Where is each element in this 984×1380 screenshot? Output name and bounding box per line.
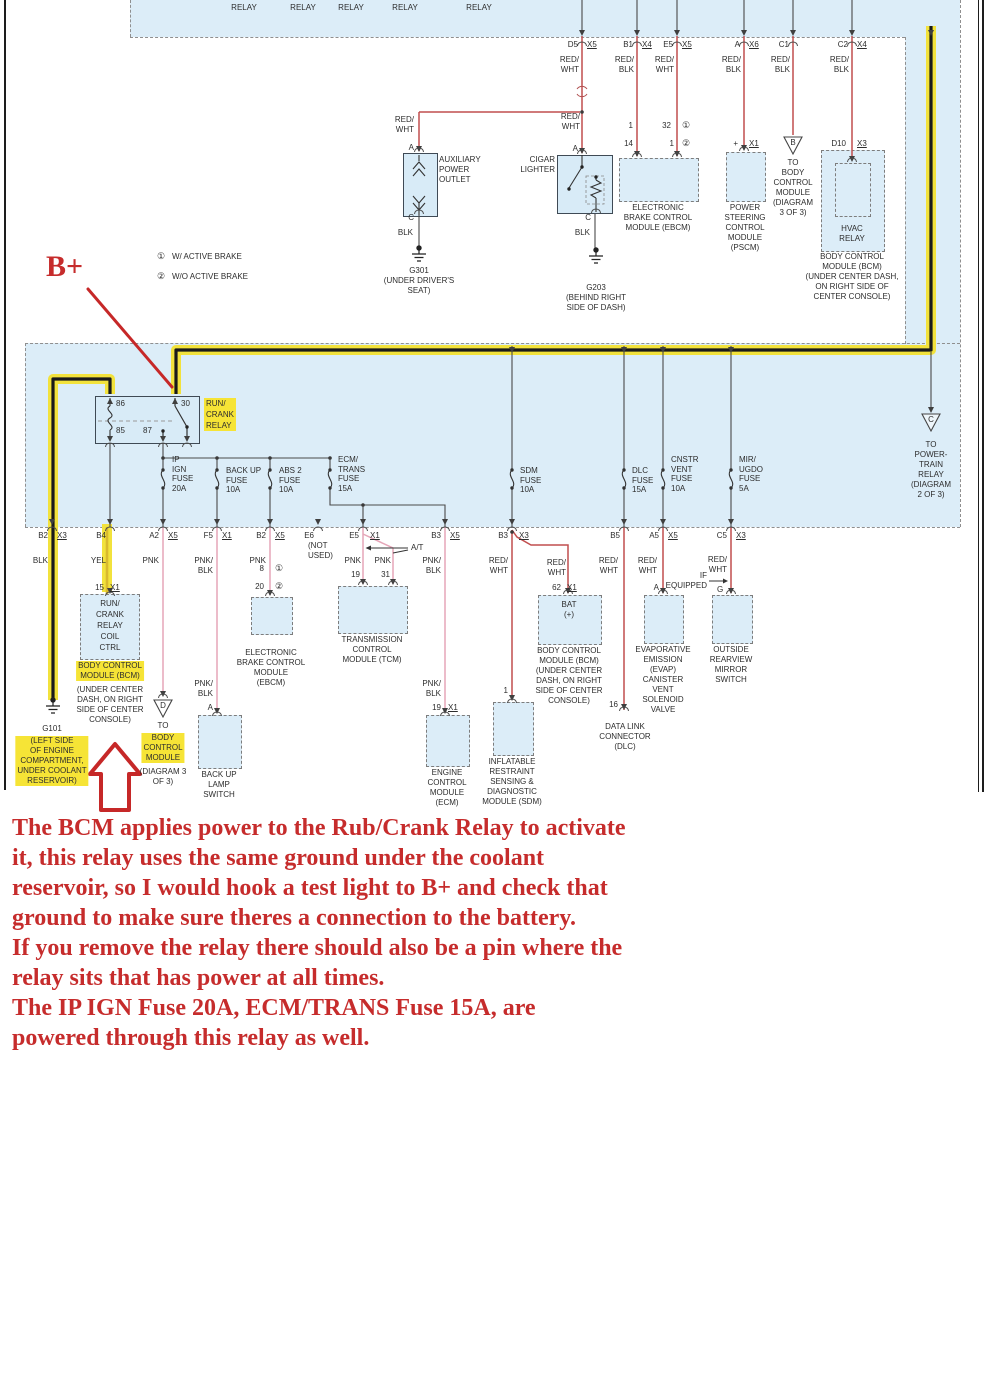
connector-pin: F5	[204, 531, 213, 541]
connector-pin: E5	[663, 40, 673, 50]
ecm-box	[426, 715, 470, 767]
wire-color-label: RED/ WHT	[638, 556, 657, 576]
ref-d-rest: (DIAGRAM 3 OF 3)	[140, 767, 187, 787]
evap-label: EVAPORATIVE EMISSION (EVAP) CANISTER VEN…	[635, 645, 690, 715]
wire-color-label: RED/ BLK	[615, 55, 634, 75]
backup-lamp-switch-label: BACK UP LAMP SWITCH	[201, 770, 236, 800]
fuse-block-bottom-border	[130, 37, 905, 38]
relay-strip-label: FAN 1 RELAY	[392, 0, 418, 13]
ref-d-to: TO	[158, 721, 169, 731]
fuse-label-abs2: ABS 2 FUSE 10A	[279, 466, 302, 495]
bcm-coil-label-highlight: BODY CONTROL MODULE (BCM)	[76, 661, 144, 681]
fuse-label-backup: BACK UP FUSE 10A	[226, 466, 261, 495]
pin-label: A	[409, 143, 414, 153]
pin-label: A	[654, 583, 659, 593]
wire-color-label: RED/ BLK	[771, 55, 790, 75]
connector-pin: B1	[623, 40, 633, 50]
pin-label: 62	[552, 583, 561, 593]
sdm-label: INFLATABLE RESTRAINT SENSING & DIAGNOSTI…	[482, 757, 542, 807]
connector-pin: B2	[256, 531, 266, 541]
sdm-box	[493, 702, 534, 756]
footnote-2-icon: ②	[157, 271, 165, 281]
page-border-left	[4, 0, 6, 790]
g101-location-highlight: (LEFT SIDE OF ENGINE COMPARTMENT, UNDER …	[15, 736, 88, 786]
connector-pin: E5	[349, 531, 359, 541]
annotation-line: relay sits that has power at all times.	[12, 963, 384, 993]
ref-d-highlight: BODY CONTROL MODULE	[141, 733, 184, 763]
tcm-label: TRANSMISSION CONTROL MODULE (TCM)	[342, 635, 403, 665]
ebcm-label: ELECTRONIC BRAKE CONTROL MODULE (EBCM)	[624, 203, 692, 233]
wire-color-label: RED/ BLK	[722, 55, 741, 75]
relay-strip-label: LO/HI RELAY	[338, 0, 364, 13]
connector-pin: D5	[568, 40, 578, 50]
wire-color-label: RED/ BLK	[830, 55, 849, 75]
relay-strip-label: ON/OFF RELAY	[288, 0, 318, 13]
fuse-label-ecm-trans: ECM/ TRANS FUSE 15A	[338, 455, 365, 493]
wire-color-label: PNK/ BLK	[422, 556, 441, 576]
connector-pin: C2	[838, 40, 848, 50]
ref-triangle-b-letter: B	[790, 138, 795, 148]
pin-label: A	[573, 144, 578, 154]
connector-id: X4	[857, 40, 867, 50]
pscm-box	[726, 152, 766, 202]
wire-color-label: RED/ WHT	[599, 556, 618, 576]
connector-pin: B4	[96, 531, 106, 541]
annotation-line: it, this relay uses the same ground unde…	[12, 843, 544, 873]
fuse-label-sdm: SDM FUSE 10A	[520, 466, 541, 495]
right-column-right-border	[960, 0, 961, 527]
pin-label: 14	[624, 139, 633, 149]
connector-id: X5	[275, 531, 285, 541]
pin-label: 1	[504, 686, 508, 696]
if-equipped-note: IF EQUIPPED	[666, 571, 707, 591]
wire-color-label: RED/ WHT	[395, 115, 414, 135]
connector-pin: B2	[38, 531, 48, 541]
ground-label-g301: G301 (UNDER DRIVER'S SEAT)	[384, 266, 454, 296]
wire-color-label: PNK	[345, 556, 361, 566]
fuse-label-mir-ugdo: MIR/ UGDO FUSE 5A	[739, 455, 763, 493]
connector-id: X5	[450, 531, 460, 541]
wire-color-label: BLK	[398, 228, 413, 238]
ecm-label: ENGINE CONTROL MODULE (ECM)	[427, 768, 466, 808]
connector-id: X1	[448, 703, 458, 713]
page-border-right	[978, 0, 979, 792]
ebcm-bottom-label: ELECTRONIC BRAKE CONTROL MODULE (EBCM)	[237, 648, 305, 688]
ebcm-top-box	[619, 158, 699, 202]
bcm-top-label: BODY CONTROL MODULE (BCM) (UNDER CENTER …	[806, 252, 899, 302]
connector-pin: B3	[431, 531, 441, 541]
ground-label-g203: G203 (BEHIND RIGHT SIDE OF DASH)	[566, 283, 626, 313]
hvac-relay-inner-box	[835, 163, 871, 217]
footnote-1-icon: ①	[275, 563, 283, 573]
wire-color-label: BLK	[33, 556, 48, 566]
band-top-border	[25, 343, 960, 344]
pin-label: D10	[831, 139, 846, 149]
connector-id: X5	[168, 531, 178, 541]
band-bottom-border	[25, 527, 960, 528]
connector-pin: A	[735, 40, 740, 50]
pin-label: 20	[255, 582, 264, 592]
fuse-block-left-border	[130, 0, 131, 37]
g101-name: G101	[42, 724, 62, 734]
relay-strip-label: RELAY	[172, 0, 198, 3]
connector-id: X3	[57, 531, 67, 541]
connector-pin: C5	[717, 531, 727, 541]
wire-color-label: YEL	[91, 556, 106, 566]
band-left-border	[25, 343, 26, 527]
not-used-label: (NOT USED)	[308, 541, 333, 561]
connector-pin: B5	[610, 531, 620, 541]
wire-color-label: RED/ WHT	[547, 558, 566, 578]
aux-power-outlet-label: AUXILIARY POWER OUTLET	[439, 155, 481, 185]
relay-strip-label: FAN 2 RELAY	[466, 0, 492, 13]
annotation-line: reservoir, so I would hook a test light …	[12, 873, 608, 903]
aux-power-outlet-box	[403, 153, 438, 217]
wire-color-label: PNK	[143, 556, 159, 566]
mirror-switch-box	[712, 595, 753, 644]
pin-label: 19	[351, 570, 360, 580]
right-column-area	[905, 37, 960, 344]
annotation-line: The BCM applies power to the Rub/Crank R…	[12, 813, 626, 843]
bplus-annotation: B+	[46, 250, 83, 284]
wire-color-label: PNK/ BLK	[194, 556, 213, 576]
fuse-label-dlc: DLC FUSE 15A	[632, 466, 653, 495]
ebcm-bottom-box	[251, 597, 293, 635]
fuse-label-ip-ign: IP IGN FUSE 20A	[172, 455, 193, 493]
connector-id: X1	[370, 531, 380, 541]
coil-ctrl-box-text: RUN/ CRANK RELAY COIL CTRL	[96, 598, 124, 653]
wire-color-label: RED/ WHT	[560, 55, 579, 75]
connector-id: X3	[519, 531, 529, 541]
footnote-1-icon: ①	[157, 251, 165, 261]
pin-label: 8	[260, 564, 264, 574]
ref-b-label: TO BODY CONTROL MODULE (DIAGRAM 3 OF 3)	[773, 158, 813, 218]
wire-color-label: BLK	[575, 228, 590, 238]
legend-text: W/ ACTIVE BRAKE	[172, 252, 242, 262]
relay-pin-87: 87	[143, 426, 152, 436]
cigar-lighter-box	[557, 155, 613, 214]
pin-label: 16	[609, 700, 618, 710]
wire-color-label: PNK/ BLK	[194, 679, 213, 699]
wire-color-label: PNK	[375, 556, 391, 566]
relay-pin-86: 86	[116, 399, 125, 409]
mirror-switch-label: OUTSIDE REARVIEW MIRROR SWITCH	[710, 645, 753, 685]
connector-id: X6	[749, 40, 759, 50]
connector-pin: B3	[498, 531, 508, 541]
pin-label: A	[208, 703, 213, 713]
connector-id: X3	[736, 531, 746, 541]
connector-pin: C1	[779, 40, 789, 50]
bat-bcm-label: BODY CONTROL MODULE (BCM) (UNDER CENTER …	[535, 646, 602, 706]
wire-color-label: RED/ WHT	[655, 55, 674, 75]
ref-triangle-c-letter: C	[928, 415, 934, 425]
connector-id: X1	[222, 531, 232, 541]
wire-color-label: RED/ WHT	[489, 556, 508, 576]
connector-id: X1	[749, 139, 759, 149]
footnote-1-icon: ①	[682, 120, 690, 130]
connector-id: X4	[642, 40, 652, 50]
connector-id: X5	[682, 40, 692, 50]
wire-color-label: RED/ WHT	[561, 112, 580, 132]
relay-strip-label: DEFOG RELAY	[230, 0, 258, 13]
run-crank-relay-label: RUN/ CRANK RELAY	[204, 398, 236, 431]
right-column-left-border	[905, 37, 906, 344]
pscm-label: POWER STEERING CONTROL MODULE (PSCM)	[725, 203, 766, 253]
footnote-2-icon: ②	[275, 581, 283, 591]
relay-pin-30: 30	[181, 399, 190, 409]
footnote-2-icon: ②	[682, 138, 690, 148]
backup-lamp-switch-box	[198, 715, 242, 769]
dlc-label: DATA LINK CONNECTOR (DLC)	[599, 722, 650, 752]
pin-label: 1	[629, 121, 633, 131]
pin-label: +	[733, 139, 738, 149]
fuse-label-cnstr-vent: CNSTR VENT FUSE 10A	[671, 455, 699, 493]
annotation-line: ground to make sure theres a connection …	[12, 903, 576, 933]
ref-c-label: TO POWER- TRAIN RELAY (DIAGRAM 2 OF 3)	[911, 440, 951, 500]
connector-id: X5	[587, 40, 597, 50]
tcm-box	[338, 586, 408, 634]
pin-label: 31	[381, 570, 390, 580]
bcm-coil-label: (UNDER CENTER DASH, ON RIGHT SIDE OF CEN…	[76, 685, 143, 725]
bat-box-text: BAT (+)	[562, 600, 577, 620]
evap-box	[644, 595, 684, 644]
pin-label: 15	[95, 583, 104, 593]
legend-text: W/O ACTIVE BRAKE	[172, 272, 248, 282]
relay-strip-label: RELAY	[528, 0, 554, 3]
connector-id: X3	[857, 139, 867, 149]
pin-label: 1	[670, 139, 674, 149]
connector-pin: A2	[149, 531, 159, 541]
annotation-line: The IP IGN Fuse 20A, ECM/TRANS Fuse 15A,…	[12, 993, 536, 1023]
underhood-fuse-block-area: RELAY DEFOG RELAY ON/OFF RELAY LO/HI REL…	[130, 0, 960, 37]
pin-label: C	[408, 213, 414, 223]
connector-id: X1	[110, 583, 120, 593]
pin-label: 32	[662, 121, 671, 131]
cigar-lighter-label: CIGAR LIGHTER	[520, 155, 555, 175]
hvac-relay-label: HVAC RELAY	[839, 224, 865, 244]
pin-label: 19	[432, 703, 441, 713]
connector-pin: A5	[649, 531, 659, 541]
annotation-line: powered through this relay as well.	[12, 1023, 369, 1053]
wire-color-label: RED/ WHT	[708, 555, 727, 575]
ref-triangle-d-letter: D	[160, 701, 166, 711]
wire-color-label: PNK/ BLK	[422, 679, 441, 699]
at-note: A/T	[411, 543, 423, 553]
connector-id: X1	[567, 583, 577, 593]
connector-pin: E6	[304, 531, 314, 541]
annotation-line: If you remove the relay there should als…	[12, 933, 622, 963]
relay-pin-85: 85	[116, 426, 125, 436]
pin-label: C	[585, 213, 591, 223]
connector-id: X5	[668, 531, 678, 541]
wiring-diagram-page: RELAY DEFOG RELAY ON/OFF RELAY LO/HI REL…	[0, 0, 984, 1380]
pin-label: G	[717, 585, 723, 595]
